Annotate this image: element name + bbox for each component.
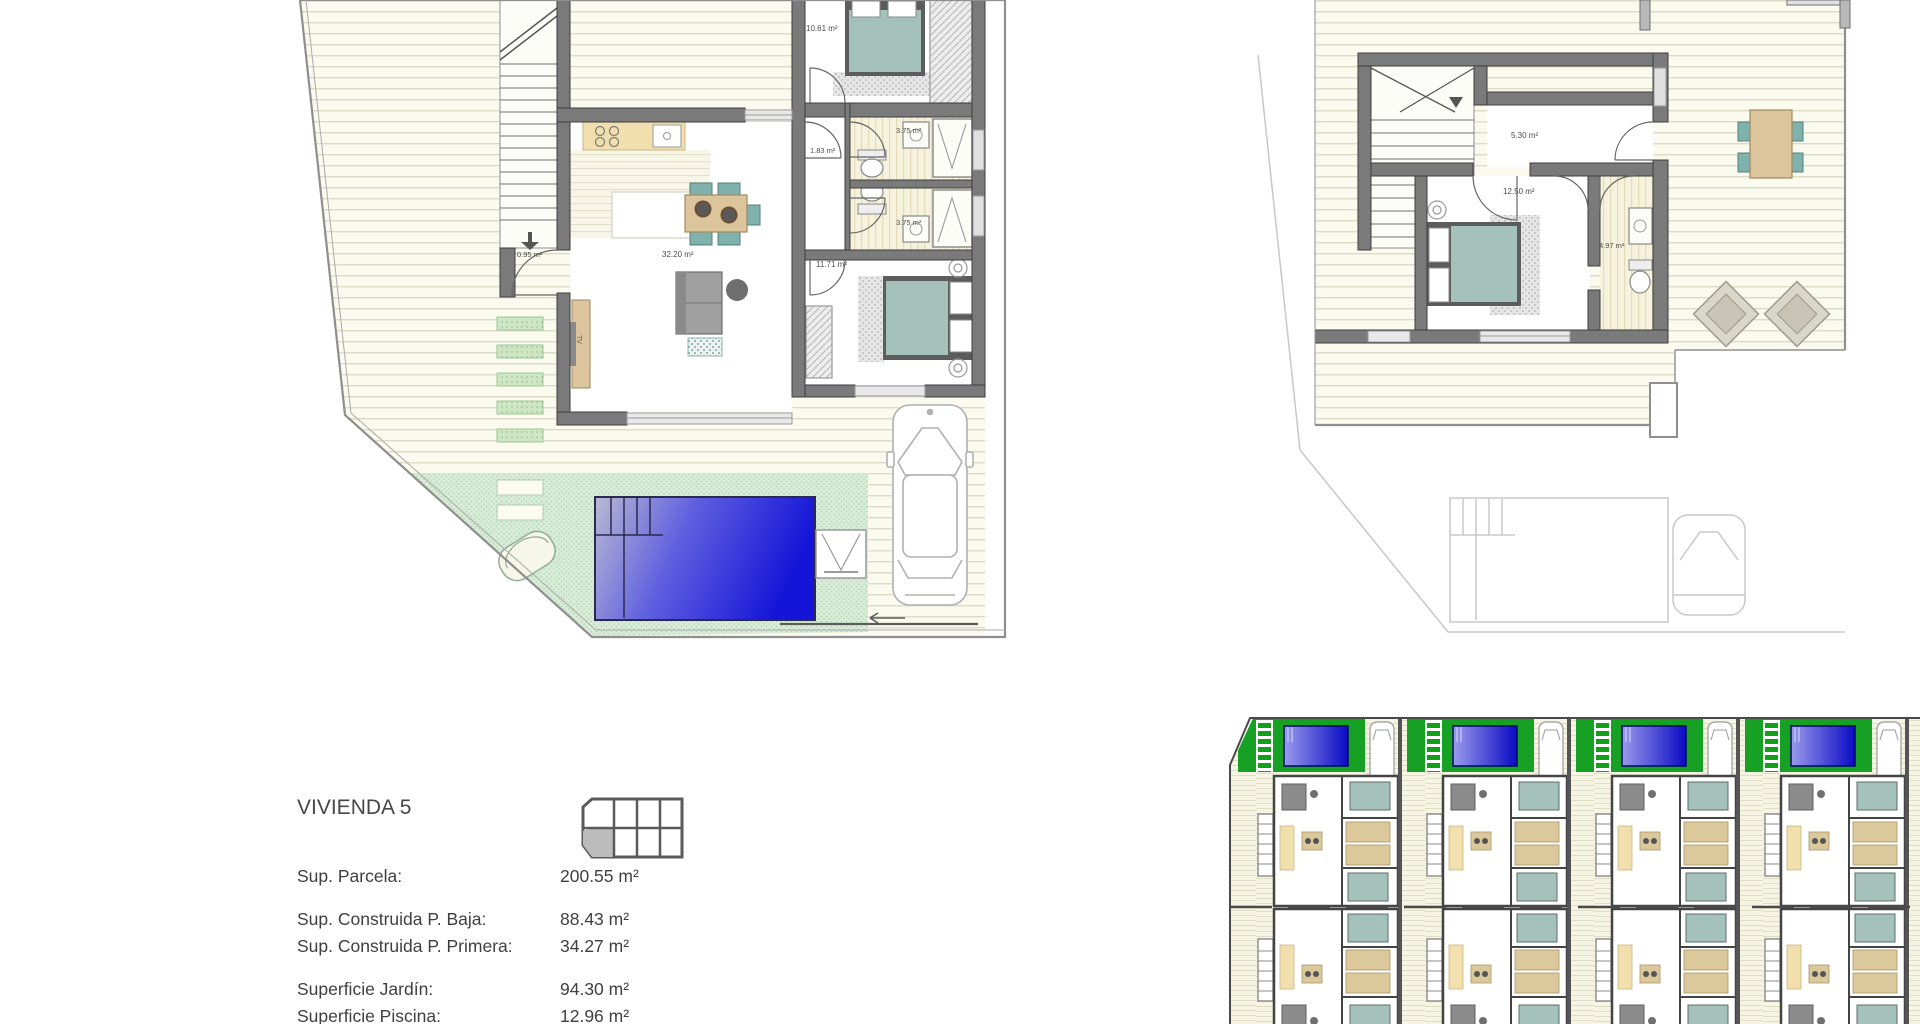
info-block: VIVIENDA 5 Sup. Parcela: 200.55 m² Sup. … xyxy=(297,796,777,1024)
area-value: 200.55 m² xyxy=(560,866,639,887)
tv-label: TV xyxy=(575,335,582,344)
area-value: 34.27 m² xyxy=(560,936,629,957)
area-row: Sup. Construida P. Primera: 34.27 m² xyxy=(297,936,777,963)
room-label-bath2: 3.75 m² xyxy=(896,218,921,227)
villa-unit-r2c2 xyxy=(1407,907,1571,1024)
pool xyxy=(595,497,815,620)
area-value: 88.43 m² xyxy=(560,909,629,930)
staircase xyxy=(500,0,557,250)
site-plan xyxy=(1228,716,1920,1024)
area-label: Superficie Piscina: xyxy=(297,1006,441,1024)
area-row: Sup. Construida P. Baja: 88.43 m² xyxy=(297,909,777,936)
room-label-hall: 1.83 m² xyxy=(810,146,835,155)
area-label: Superficie Jardín: xyxy=(297,979,433,999)
room-label-bedroom2: 11.71 m² xyxy=(816,260,847,269)
floorplan-sheet: 0.95 m² 32.20 m² 10.61 m² 1.83 m² 3.75 m… xyxy=(0,0,1920,1024)
bathroom-first-floor xyxy=(1600,176,1653,330)
ground-floor-plan xyxy=(300,0,1005,637)
outdoor-shower xyxy=(816,530,866,578)
room-label-living: 32.20 m² xyxy=(662,250,694,259)
area-label: Sup. Construida P. Baja: xyxy=(297,909,486,929)
area-value: 94.30 m² xyxy=(560,979,629,1000)
area-label: Sup. Construida P. Primera: xyxy=(297,936,513,956)
wardrobe-bedroom2 xyxy=(806,306,832,378)
room-label-bath-first: 4.97 m² xyxy=(1599,241,1624,250)
room-label-landing: 5.30 m² xyxy=(1511,131,1538,140)
villa-unit-r1c3 xyxy=(1576,718,1740,908)
hall-floor xyxy=(805,117,850,250)
villa-unit-r2c1 xyxy=(1238,907,1402,1024)
area-row: Sup. Parcela: 200.55 m² xyxy=(297,866,777,893)
wardrobe-bedroom1 xyxy=(930,0,972,103)
room-label-porch: 0.95 m² xyxy=(517,250,542,259)
area-value: 12.96 m² xyxy=(560,1006,629,1024)
car xyxy=(887,405,973,605)
room-label-bedroom1: 10.61 m² xyxy=(806,24,838,33)
villa-unit-r2c3 xyxy=(1576,907,1740,1024)
room-label-bath1: 3.75 m² xyxy=(896,126,921,135)
villa-unit-r1c1 xyxy=(1238,718,1402,908)
bedroom1-bed xyxy=(833,0,937,96)
dwelling-title: VIVIENDA 5 xyxy=(297,796,777,820)
terrace-planter xyxy=(1650,383,1677,437)
first-floor-plan xyxy=(1258,0,1850,632)
plans-drawing xyxy=(0,0,1920,1024)
bedroom-first-bed xyxy=(1425,215,1540,315)
room-label-bedroom-first: 12.50 m² xyxy=(1503,187,1535,196)
key-plan-icon xyxy=(578,795,688,863)
area-row: Superficie Piscina: 12.96 m² xyxy=(297,1006,777,1024)
villa-unit-r1c4 xyxy=(1745,718,1909,908)
villa-unit-r2c4 xyxy=(1745,907,1909,1024)
side-strip xyxy=(985,0,1005,637)
area-row: Superficie Jardín: 94.30 m² xyxy=(297,979,777,1006)
bedroom2-bed xyxy=(858,276,975,362)
area-label: Sup. Parcela: xyxy=(297,866,402,886)
villa-unit-r1c2 xyxy=(1407,718,1571,908)
